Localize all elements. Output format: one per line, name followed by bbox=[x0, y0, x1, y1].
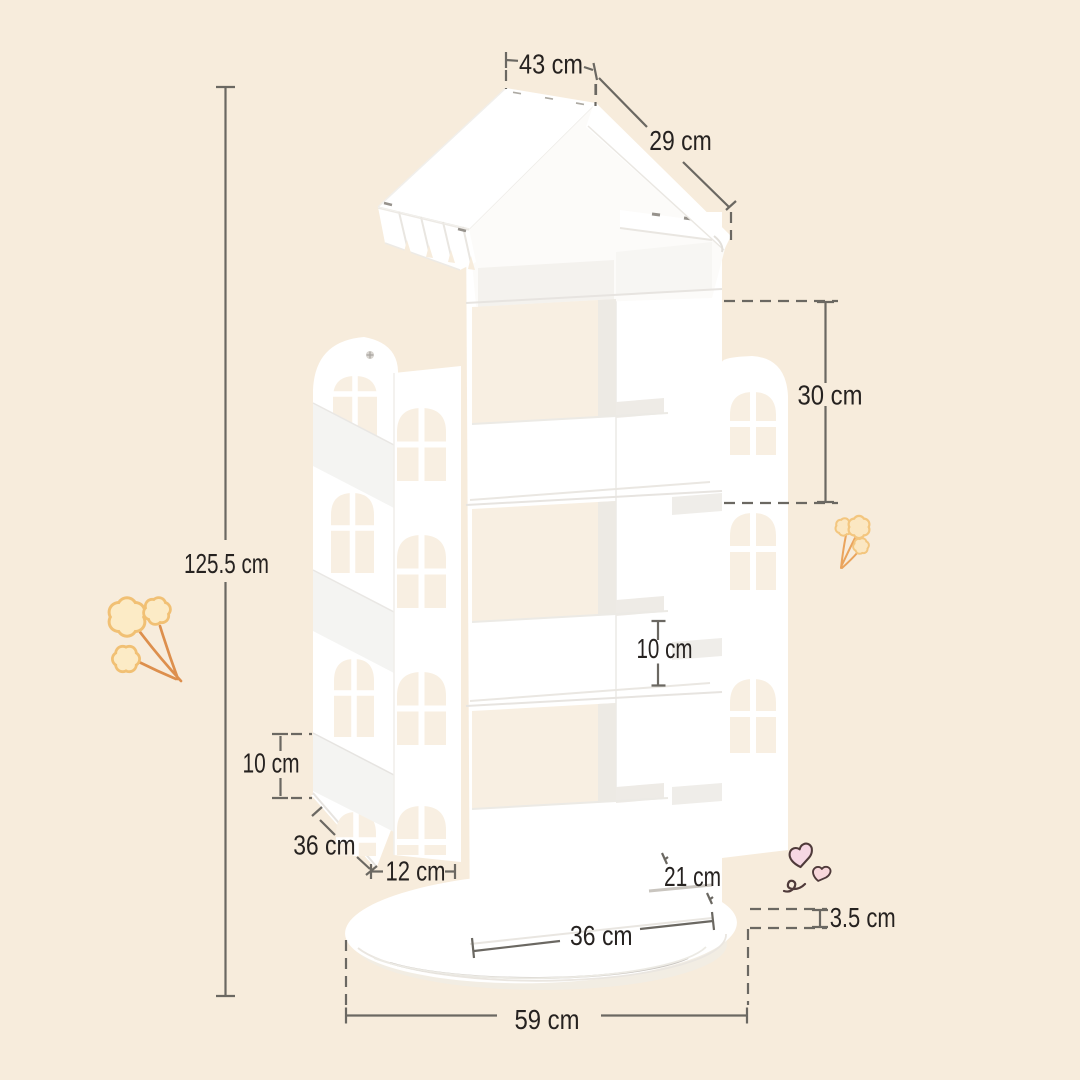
svg-text:59 cm: 59 cm bbox=[515, 1004, 580, 1035]
svg-text:29 cm: 29 cm bbox=[649, 125, 712, 156]
svg-text:10 cm: 10 cm bbox=[243, 748, 300, 779]
svg-text:43 cm: 43 cm bbox=[519, 48, 583, 79]
svg-text:3.5 cm: 3.5 cm bbox=[830, 902, 896, 933]
svg-text:36 cm: 36 cm bbox=[570, 920, 633, 951]
svg-text:12 cm: 12 cm bbox=[386, 856, 446, 887]
svg-text:10 cm: 10 cm bbox=[637, 633, 693, 664]
svg-text:125.5 cm: 125.5 cm bbox=[184, 548, 269, 579]
svg-text:36 cm: 36 cm bbox=[293, 829, 355, 860]
svg-text:30 cm: 30 cm bbox=[798, 380, 863, 411]
svg-text:21 cm: 21 cm bbox=[664, 861, 721, 892]
